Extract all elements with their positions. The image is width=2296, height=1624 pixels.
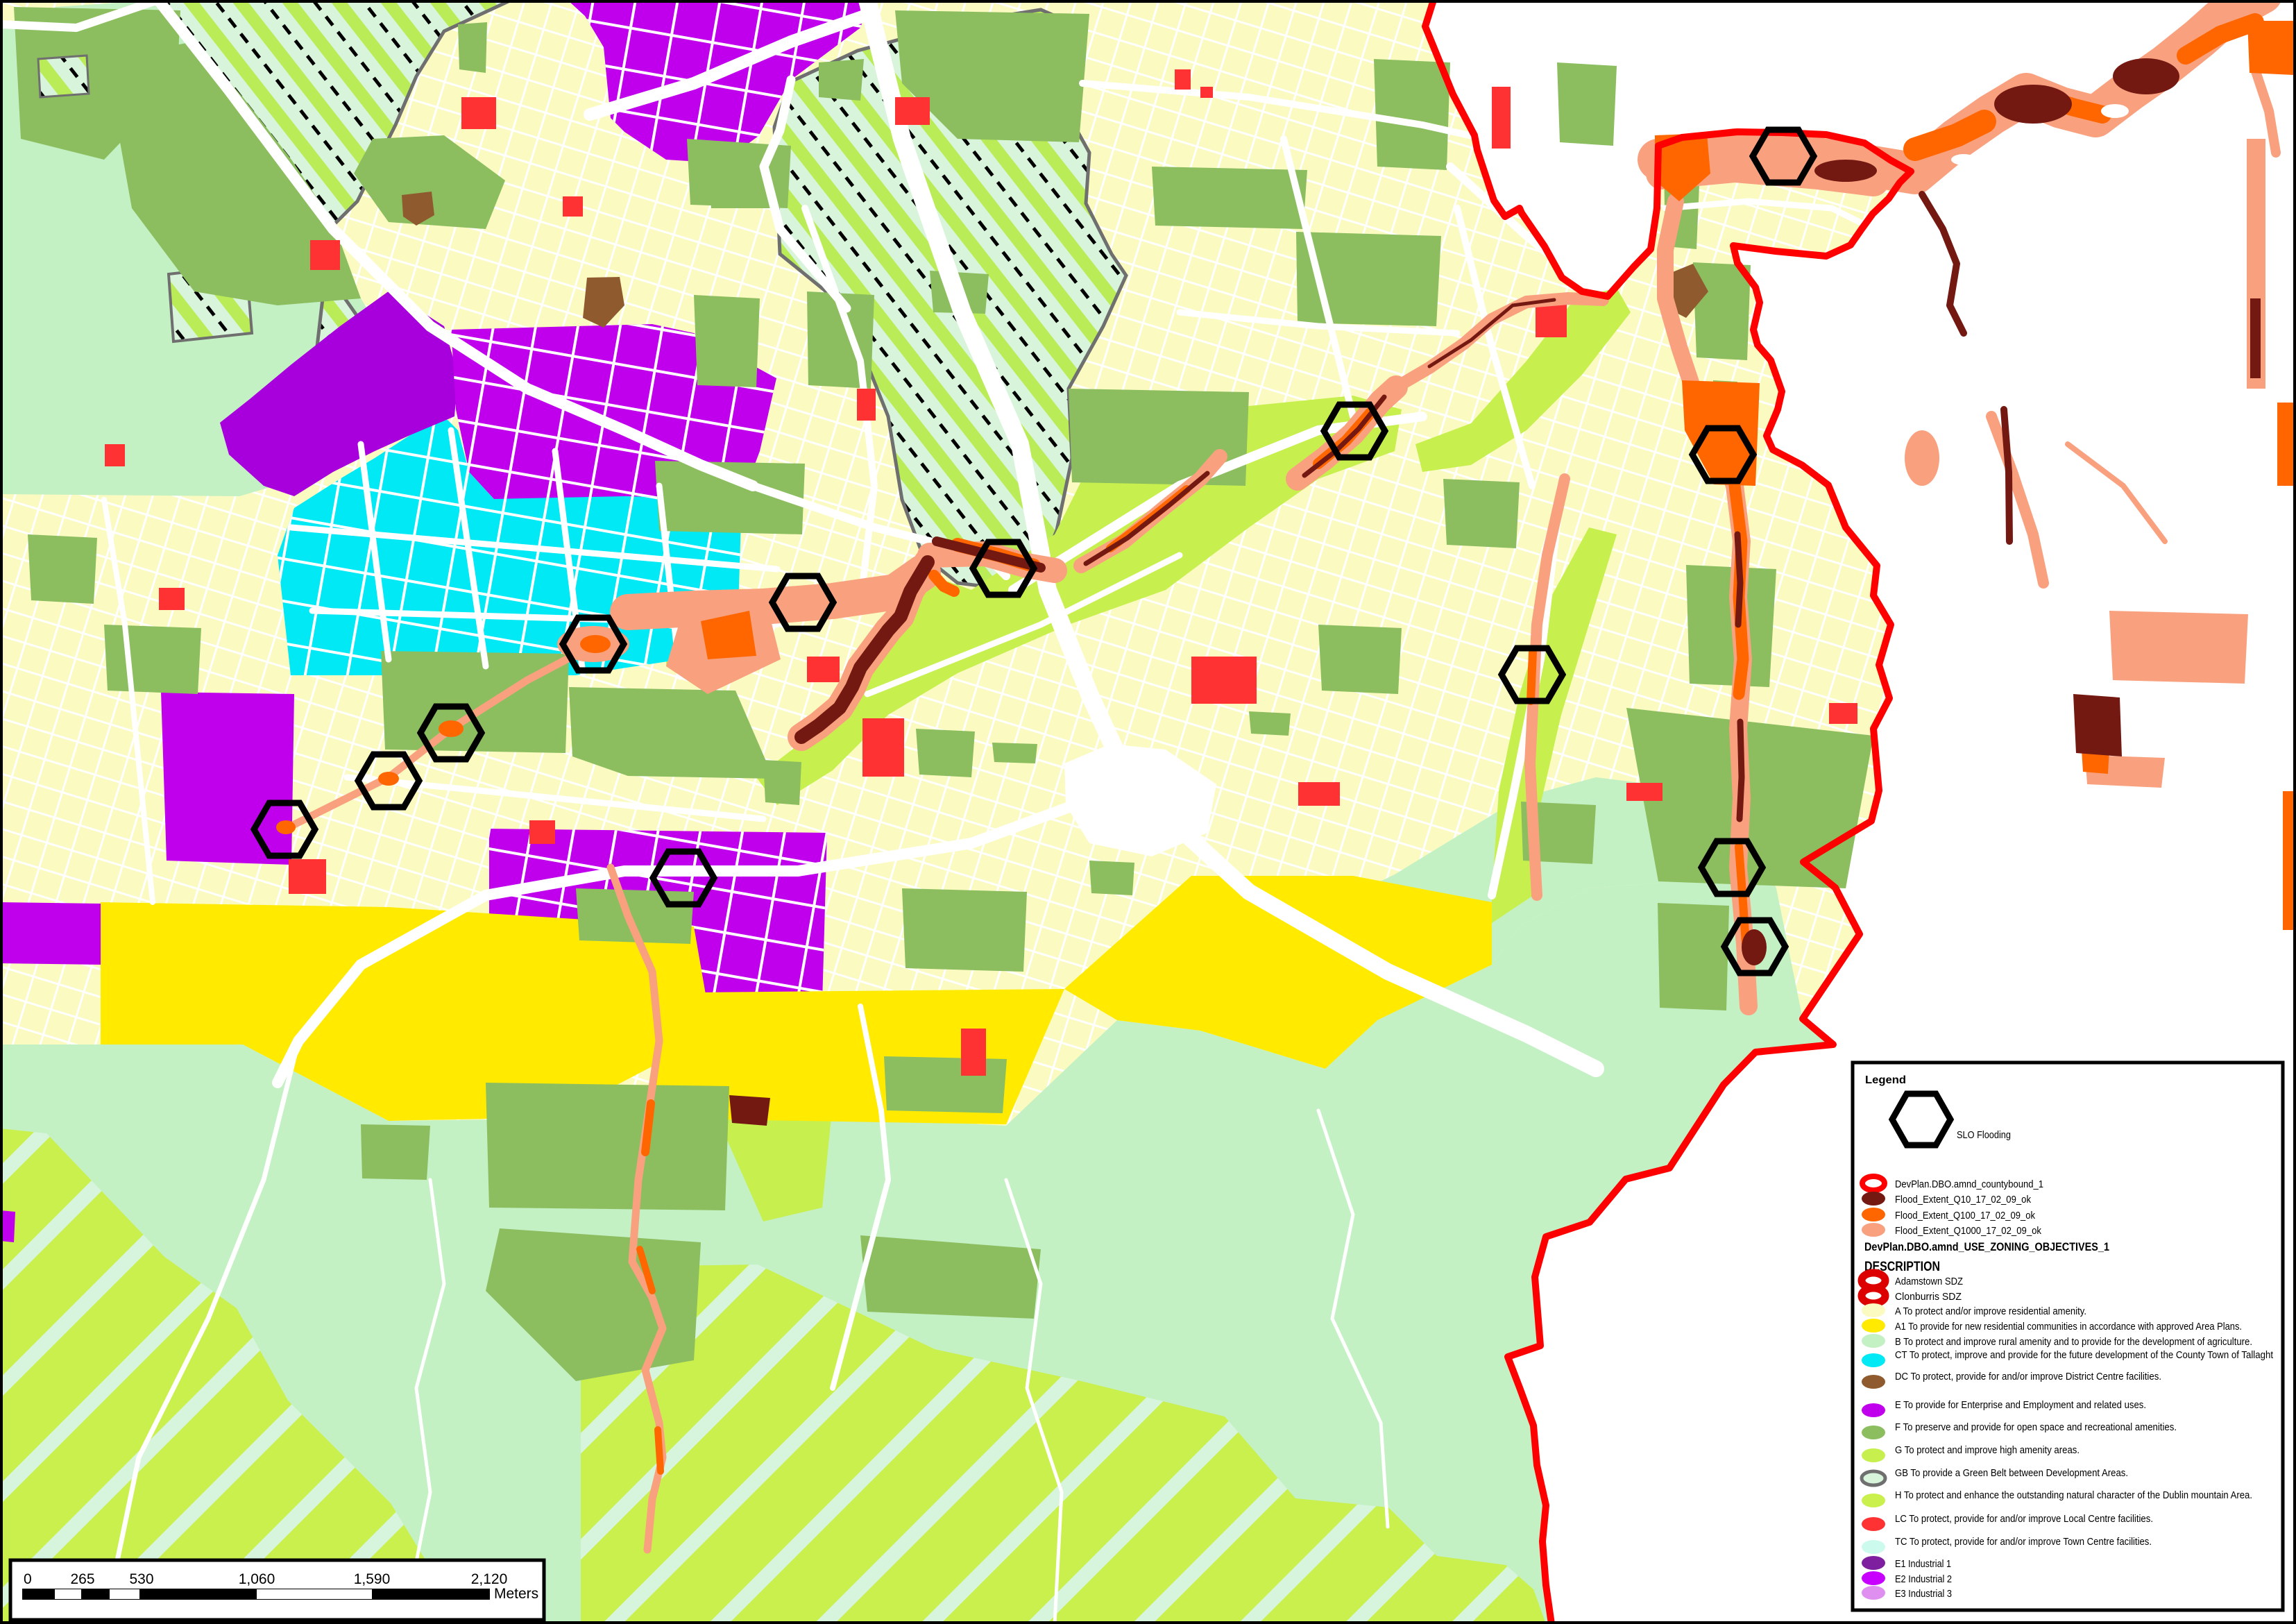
svg-text:1,060: 1,060 bbox=[239, 1571, 275, 1587]
svg-text:E To provide for Enterprise an: E To provide for Enterprise and Employme… bbox=[1895, 1399, 2146, 1411]
svg-text:530: 530 bbox=[129, 1571, 153, 1587]
svg-text:DevPlan.DBO.amnd_countybound_1: DevPlan.DBO.amnd_countybound_1 bbox=[1895, 1178, 2043, 1190]
svg-text:265: 265 bbox=[70, 1571, 94, 1587]
svg-text:2,120: 2,120 bbox=[471, 1571, 508, 1587]
svg-text:0: 0 bbox=[24, 1571, 32, 1587]
svg-text:LC To protect, provide for and: LC To protect, provide for and/or improv… bbox=[1895, 1513, 2153, 1525]
svg-text:SLO Flooding: SLO Flooding bbox=[1957, 1129, 2011, 1141]
svg-text:H To protect and enhance the o: H To protect and enhance the outstanding… bbox=[1895, 1489, 2252, 1501]
svg-text:TC To protect, provide for and: TC To protect, provide for and/or improv… bbox=[1895, 1536, 2152, 1548]
svg-text:Adamstown SDZ: Adamstown SDZ bbox=[1895, 1276, 1963, 1287]
svg-text:E2 Industrial 2: E2 Industrial 2 bbox=[1895, 1573, 1952, 1585]
svg-text:E3 Industrial 3: E3 Industrial 3 bbox=[1895, 1588, 1952, 1600]
svg-text:F To preserve and provide for: F To preserve and provide for open space… bbox=[1895, 1421, 2177, 1433]
svg-text:1,590: 1,590 bbox=[354, 1571, 391, 1587]
svg-text:Meters: Meters bbox=[494, 1586, 538, 1602]
svg-text:Flood_Extent_Q10_17_02_09_ok: Flood_Extent_Q10_17_02_09_ok bbox=[1895, 1194, 2031, 1206]
svg-text:A To protect and/or improve re: A To protect and/or improve residential … bbox=[1895, 1305, 2086, 1317]
svg-text:B To protect and improve rural: B To protect and improve rural amenity a… bbox=[1895, 1336, 2252, 1348]
svg-text:Clonburris SDZ: Clonburris SDZ bbox=[1895, 1291, 1962, 1303]
svg-text:E1 Industrial 1: E1 Industrial 1 bbox=[1895, 1558, 1951, 1570]
svg-text:G To protect and improve high: G To protect and improve high amenity ar… bbox=[1895, 1444, 2080, 1456]
svg-text:Flood_Extent_Q1000_17_02_09_ok: Flood_Extent_Q1000_17_02_09_ok bbox=[1895, 1225, 2041, 1237]
svg-text:Flood_Extent_Q100_17_02_09_ok: Flood_Extent_Q100_17_02_09_ok bbox=[1895, 1210, 2035, 1221]
svg-text:DevPlan.DBO.amnd_USE_ZONING_OB: DevPlan.DBO.amnd_USE_ZONING_OBJECTIVES_1 bbox=[1864, 1240, 2109, 1253]
svg-text:CT To protect, improve and pro: CT To protect, improve and provide for t… bbox=[1895, 1349, 2274, 1361]
svg-text:A1 To provide for new resident: A1 To provide for new residential commun… bbox=[1895, 1321, 2242, 1333]
svg-text:Legend: Legend bbox=[1865, 1074, 1906, 1086]
svg-text:DC To protect, provide for and: DC To protect, provide for and/or improv… bbox=[1895, 1371, 2161, 1382]
svg-text:GB To provide a Green Belt bet: GB To provide a Green Belt between Devel… bbox=[1895, 1467, 2128, 1479]
